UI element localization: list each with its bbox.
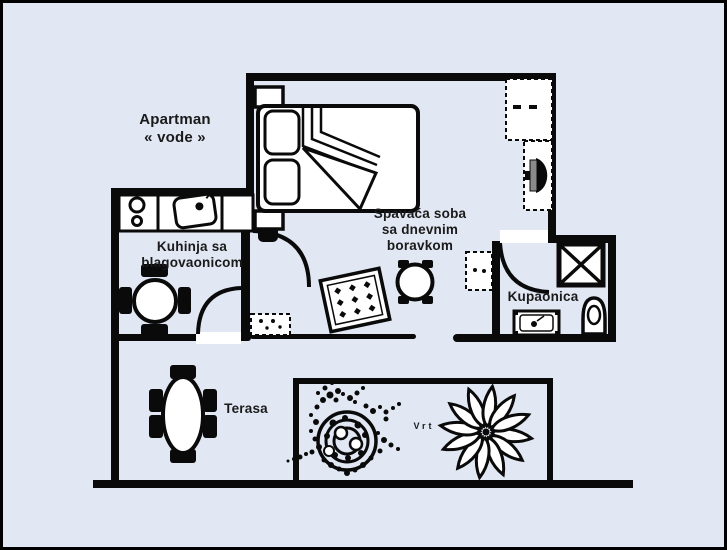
bedroom-label: Spavaća soba sa dnevnim boravkom [374,206,466,254]
door-arc-bathroom [500,243,549,292]
kitchen-sink-icon [173,191,217,228]
floorplan-page: Apartman « vode » Kuhinja sa blagovaonic… [0,0,727,550]
apartment-title-line2: « vode » [139,129,211,147]
pillow-icon [265,111,299,154]
stove-burners-icon [130,198,144,226]
bathroom-sink-icon [514,311,559,335]
tv-icon [525,171,530,180]
rug [320,268,390,331]
tv-cabinet [524,141,552,210]
apartment-title-line1: Apartman [139,111,211,129]
floorplan-canvas [3,3,727,550]
garden-bush-icon [287,381,402,476]
kitchen-counter [119,191,253,231]
toilet-icon [583,298,605,334]
wardrobe [506,79,552,140]
storage-cabinet [251,314,290,335]
apartment-title: Apartman « vode » [139,111,211,147]
door-arc-terrace [198,288,241,334]
terrace-label: Terasa [224,401,268,417]
shower-icon [559,244,603,285]
kitchen-dining-table [119,264,191,337]
bathroom-label: Kupaonica [508,289,579,305]
garden-flower-icon [434,380,538,484]
hall-cabinet [466,252,492,290]
pillow-icon [265,160,299,204]
nightstand-icon [255,211,283,229]
side-table [398,260,434,304]
kitchen-label: Kuhinja sa blagovaonicom [141,239,243,271]
garden-label: Vrt [413,421,434,431]
terrace-dining-table [149,365,217,463]
tv-screen [530,160,537,191]
